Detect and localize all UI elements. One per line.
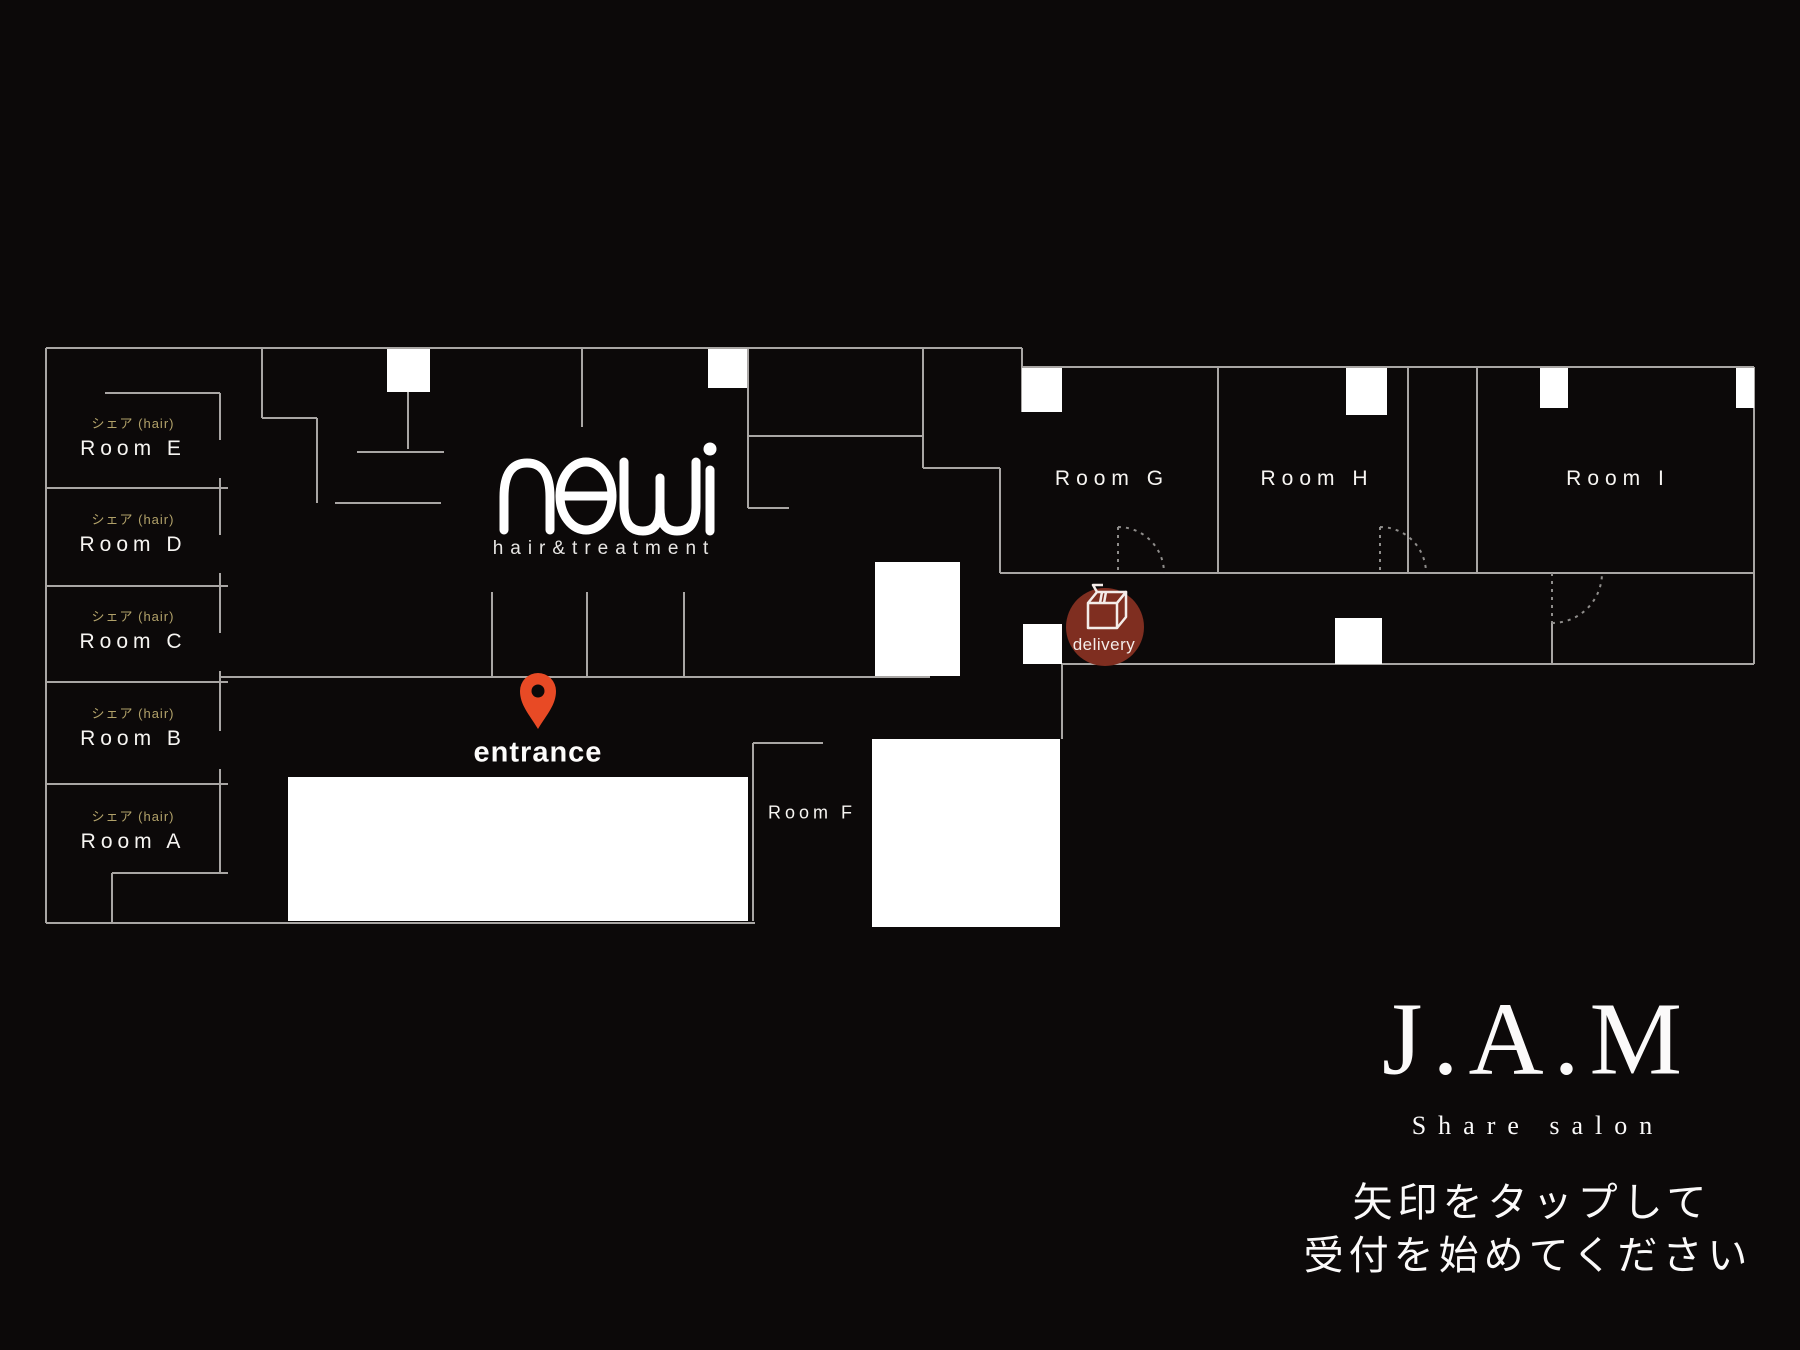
entrance-label[interactable]: entrance [474,737,603,770]
room-label-d: シェア (hair) Room D [79,509,186,557]
floor-plan [0,0,1800,1350]
pillar-corridor-left [1023,624,1062,664]
room-c-type: シェア (hair) [92,606,175,625]
pillar-room-h [1346,368,1387,415]
room-f-side-area [872,739,1060,927]
instruction-line-2: 受付を始めてください [1304,1223,1753,1281]
room-label-a: シェア (hair) Room A [81,806,186,854]
newi-letter-w [624,462,696,531]
pillar-room-i [1540,368,1568,408]
door-arc-room-i [1552,573,1602,623]
pillar-room-g [1022,368,1062,412]
room-label-g: Room G [1055,467,1169,491]
pillar-corner-right [1736,368,1754,408]
room-label-b: シェア (hair) Room B [80,703,186,751]
room-b-name: Room B [80,727,186,751]
room-e-name: Room E [80,437,186,461]
room-a-name: Room A [81,830,186,854]
jam-logo: J.A.M [1382,980,1692,1099]
door-arcs [1118,527,1602,623]
room-label-i: Room I [1566,467,1670,491]
floor-map-screen: シェア (hair) Room E シェア (hair) Room D シェア … [0,0,1800,1350]
room-label-c: シェア (hair) Room C [79,606,186,654]
room-c-name: Room C [79,630,186,654]
room-e-type: シェア (hair) [92,413,175,432]
white-areas [288,349,1754,927]
door-arc-room-g [1118,527,1164,573]
newi-letter-i-dot [704,443,717,456]
newi-letter-n [504,463,550,530]
entrance-hall-area [288,777,748,921]
room-d-type: シェア (hair) [92,509,175,528]
jam-subtitle: Share salon [1412,1111,1665,1141]
pillar-main-2 [708,349,747,388]
delivery-label[interactable]: delivery [1073,635,1136,655]
room-label-h: Room H [1260,467,1373,491]
map-pin-icon[interactable] [520,673,556,729]
newi-tagline: hair&treatment [493,538,716,560]
door-arc-room-h [1380,527,1426,573]
room-d-name: Room D [79,533,186,557]
pillar-corridor-mid [1335,618,1382,664]
newi-logo [504,443,717,532]
room-label-f: Room F [768,803,856,824]
room-a-type: シェア (hair) [92,806,175,825]
block-mid-right [875,562,960,676]
instruction-line-1: 矢印をタップして [1353,1170,1712,1228]
room-b-type: シェア (hair) [92,703,175,722]
pillar-main-1 [387,349,430,392]
room-label-e: シェア (hair) Room E [80,413,186,461]
